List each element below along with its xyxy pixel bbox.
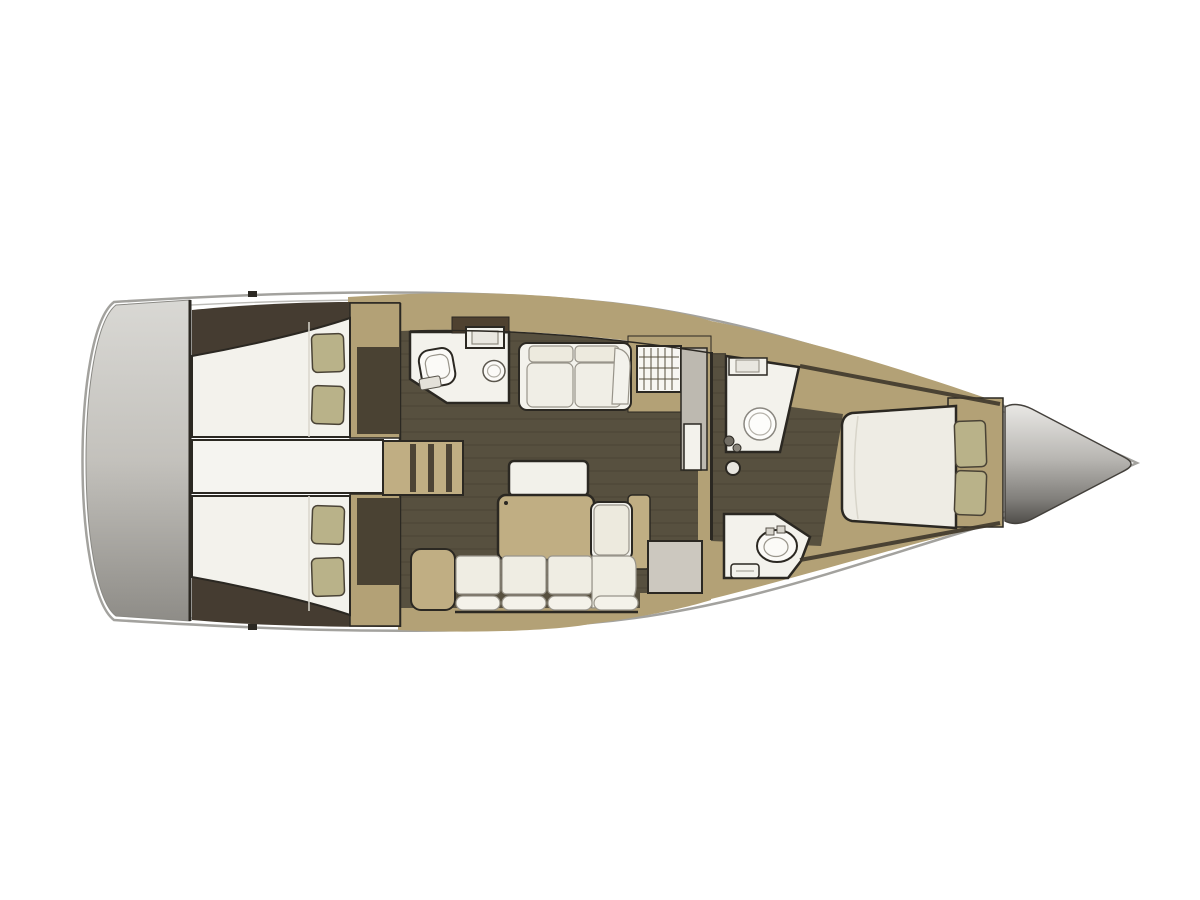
deck-cleat-top <box>248 291 257 297</box>
shower-sink-basin <box>736 360 759 372</box>
sofa-seat-cushion-3 <box>548 556 592 594</box>
sofa-bolster-1 <box>456 596 500 610</box>
forward-toilet <box>757 530 797 562</box>
pillow-forward-2 <box>954 470 987 515</box>
pillow-forward-1 <box>954 420 987 467</box>
wardrobe-starboard-inset <box>357 498 400 585</box>
step-groove-3 <box>446 444 452 492</box>
shower-fitting-2 <box>733 444 741 452</box>
bow-locker-cone <box>1005 405 1131 524</box>
shower-fitting-1 <box>724 436 734 446</box>
sofa-seat-cushion-1 <box>456 556 500 594</box>
saloon-table <box>498 495 594 560</box>
pillow-aft-port-2 <box>311 385 344 424</box>
sofa-bolster-4 <box>594 596 638 610</box>
swim-platform <box>86 300 190 621</box>
aft-head-basin <box>483 361 505 382</box>
step-groove-1 <box>410 444 416 492</box>
floor-plan-canvas <box>0 0 1200 900</box>
fridge-door <box>684 424 701 470</box>
pillow-aft-starboard-1 <box>311 505 344 544</box>
toilet-hinge-2 <box>777 526 785 533</box>
step-groove-2 <box>428 444 434 492</box>
companionway-corridor <box>192 440 383 493</box>
settee-back-cushion-1 <box>529 346 573 362</box>
island-berth <box>842 406 956 528</box>
settee-seat-cushion-1 <box>527 363 573 407</box>
yacht-floor-plan <box>0 0 1200 900</box>
table-pin <box>504 501 508 505</box>
mast-step <box>726 461 740 475</box>
sofa-bolster-2 <box>502 596 546 610</box>
pillow-aft-starboard-2 <box>311 557 344 596</box>
wardrobe-port-inset <box>357 347 400 434</box>
pillow-aft-port-1 <box>311 333 344 372</box>
settee-back-cushion-2 <box>575 346 619 362</box>
sofa-bolster-3 <box>548 596 592 610</box>
toilet-hinge-1 <box>766 528 774 535</box>
deck-cleat-bottom <box>248 624 257 630</box>
settee-arm-right <box>612 348 630 404</box>
sofa-arm <box>411 549 455 610</box>
table-leaf <box>509 461 588 496</box>
side-bench-cushion <box>594 505 629 555</box>
step-box <box>648 541 702 593</box>
sofa-seat-cushion-2 <box>502 556 546 594</box>
aft-head-sink-basin <box>472 331 498 344</box>
